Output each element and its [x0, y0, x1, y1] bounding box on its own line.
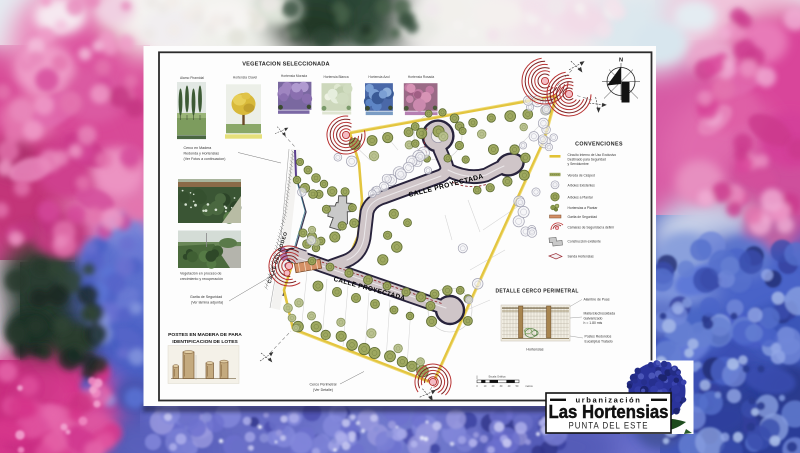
- svg-text:PUNTA DEL ESTE: PUNTA DEL ESTE: [569, 421, 649, 431]
- svg-text:Escala Gráfica: Escala Gráfica: [489, 375, 506, 379]
- svg-text:(Ver Fotos a continuacion): (Ver Fotos a continuacion): [184, 157, 226, 161]
- svg-text:CONVENCIONES: CONVENCIONES: [575, 142, 623, 148]
- svg-text:Redonda y Hortensias: Redonda y Hortensias: [184, 152, 220, 156]
- svg-text:Cerco en Madera: Cerco en Madera: [184, 146, 212, 150]
- svg-text:Hortensia Blanca: Hortensia Blanca: [323, 75, 348, 79]
- svg-text:crecimiento y recuperación: crecimiento y recuperación: [180, 277, 223, 281]
- svg-text:Las Hortensias: Las Hortensias: [549, 401, 669, 422]
- svg-text:Arboles a Plantar: Arboles a Plantar: [568, 195, 594, 199]
- svg-text:Senda Hortensias: Senda Hortensias: [568, 255, 595, 259]
- svg-text:Galvanizado: Galvanizado: [584, 316, 603, 320]
- svg-text:Hortensia Clavel: Hortensia Clavel: [233, 76, 257, 80]
- svg-text:(Ver Detalle): (Ver Detalle): [313, 388, 333, 392]
- svg-text:Hortensias a Plantar: Hortensias a Plantar: [568, 206, 599, 210]
- svg-text:Hortensia Morada: Hortensia Morada: [281, 74, 307, 78]
- svg-text:Alamo Piramidal: Alamo Piramidal: [180, 76, 204, 80]
- svg-text:Arboles Existentes: Arboles Existentes: [568, 183, 596, 187]
- svg-text:VEGETACION SELECCIONADA: VEGETACION SELECCIONADA: [242, 62, 329, 68]
- svg-text:h = 1.80 mts: h = 1.80 mts: [584, 321, 603, 325]
- svg-text:(Ver lámina adjunta): (Ver lámina adjunta): [191, 301, 223, 305]
- svg-text:Destinado para Seguridad: Destinado para Seguridad: [568, 157, 606, 161]
- svg-text:Vereda de Césped: Vereda de Césped: [568, 173, 595, 177]
- svg-text:Hortensia Rosada: Hortensia Rosada: [408, 75, 435, 79]
- svg-text:Cerco Perimetral: Cerco Perimetral: [310, 383, 337, 387]
- svg-text:DETALLE CERCO PERIMETRAL: DETALLE CERCO PERIMETRAL: [496, 289, 579, 295]
- svg-text:y Servidumbre: y Servidumbre: [568, 162, 589, 166]
- svg-text:Malla Electrosoldada: Malla Electrosoldada: [584, 312, 616, 316]
- svg-text:metros: metros: [525, 385, 533, 388]
- svg-text:Alambre de Puas: Alambre de Puas: [584, 298, 610, 302]
- svg-text:Cámaras de Seguridad a definir: Cámaras de Seguridad a definir: [568, 226, 615, 230]
- svg-text:Hortensia Azul: Hortensia Azul: [368, 75, 390, 79]
- svg-text:IDENTIFICACION DE LOTES: IDENTIFICACION DE LOTES: [172, 339, 238, 345]
- svg-text:Garita de Seguridad: Garita de Seguridad: [190, 295, 222, 299]
- svg-text:Garita de Seguridad: Garita de Seguridad: [568, 215, 598, 219]
- svg-text:Postes Redondos: Postes Redondos: [585, 335, 612, 339]
- svg-text:Construcción existente: Construcción existente: [568, 240, 602, 244]
- svg-text:POSTES EN MADERA DE PARA: POSTES EN MADERA DE PARA: [168, 332, 242, 338]
- svg-text:Hortensias: Hortensias: [526, 348, 543, 352]
- svg-text:N: N: [619, 58, 623, 64]
- svg-text:Eucaliptus Tratado: Eucaliptus Tratado: [585, 339, 613, 343]
- svg-text:Circuito Interno de Uso Exclus: Circuito Interno de Uso Exclusivo: [568, 153, 617, 157]
- svg-text:Vegetación en proceso de: Vegetación en proceso de: [180, 272, 222, 276]
